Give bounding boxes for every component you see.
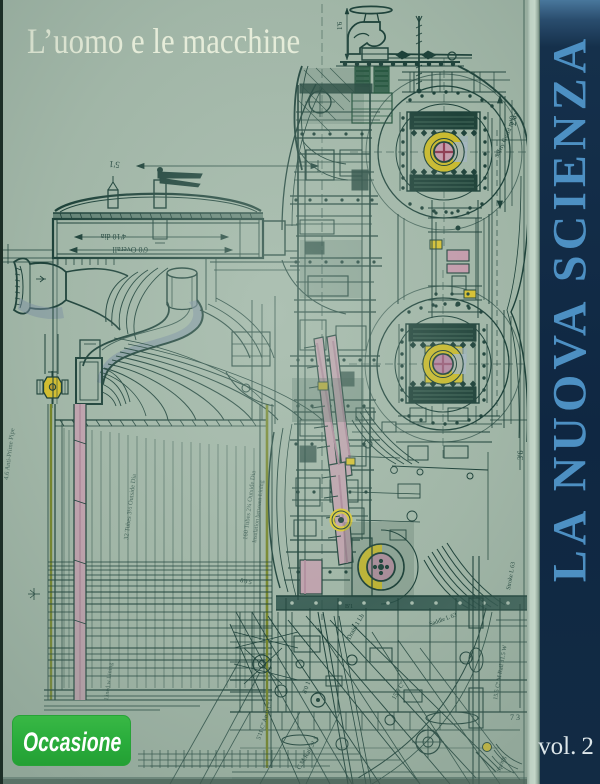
svg-text:4'10 dia: 4'10 dia xyxy=(100,232,126,241)
svg-text:Saddle L 63: Saddle L 63 xyxy=(429,612,458,627)
svg-text:4.6 Anti-Prime Pipe: 4.6 Anti-Prime Pipe xyxy=(3,428,16,480)
svg-text:8'0 1: 8'0 1 xyxy=(301,680,312,694)
svg-text:C.M.Rail 31.5: C.M.Rail 31.5 xyxy=(296,735,321,771)
svg-text:6'0 Overall: 6'0 Overall xyxy=(112,245,148,254)
svg-text:Drain 1 Lb: Drain 1 Lb xyxy=(346,613,366,641)
svg-text:1'6: 1'6 xyxy=(336,21,344,30)
svg-text:7 3: 7 3 xyxy=(510,713,520,722)
svg-text:B'1: B'1 xyxy=(345,604,353,610)
svg-text:Spring: Spring xyxy=(496,756,507,773)
svg-text:8'0 5: 8'0 5 xyxy=(240,578,253,586)
svg-text:32 Tubes 3½ Outside Dia: 32 Tubes 3½ Outside Dia xyxy=(123,474,138,541)
svg-text:Stroke L 63: Stroke L 63 xyxy=(506,562,517,591)
svg-text:5'1: 5'1 xyxy=(109,159,120,170)
